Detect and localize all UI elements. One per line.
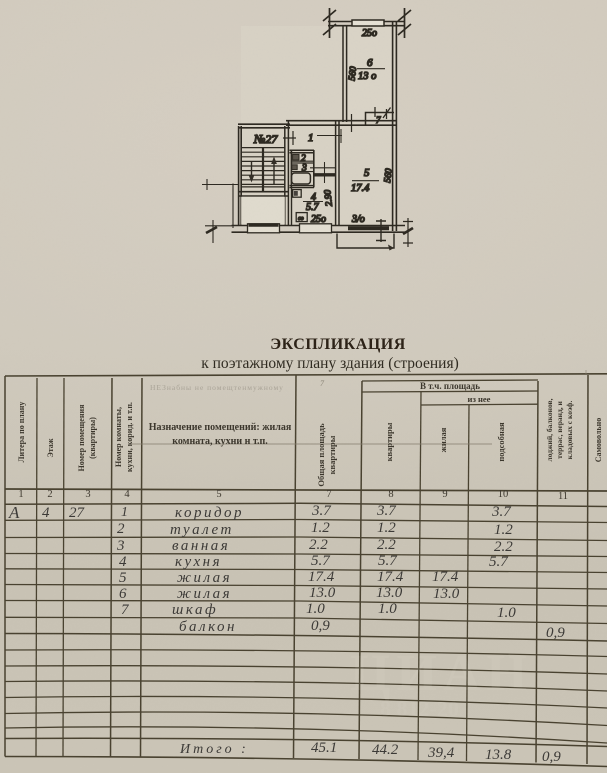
svg-text:1.0: 1.0 [378,601,397,617]
svg-text:Этаж: Этаж [46,438,55,457]
svg-text:шкаф: шкаф [172,602,218,618]
svg-text:1: 1 [18,489,23,500]
svg-text:7: 7 [121,602,130,618]
svg-text:балкон: балкон [179,619,237,635]
svg-text:7: 7 [376,115,381,125]
svg-text:квартиры: квартиры [327,435,337,474]
svg-text:5: 5 [216,489,221,500]
svg-text:560: 560 [348,66,360,82]
svg-text:3.7: 3.7 [376,503,397,519]
svg-text:№27: №27 [253,132,278,146]
svg-text:25o: 25o [311,214,326,225]
svg-text:В т.ч. площадь: В т.ч. площадь [420,381,480,391]
svg-text:(квартиры): (квартиры) [88,417,97,459]
svg-text:1: 1 [308,132,314,144]
svg-text:2.90: 2.90 [323,189,335,207]
svg-text:Назначение помещений: жилая: Назначение помещений: жилая [149,422,292,433]
svg-text:квартиры: квартиры [384,422,394,461]
svg-text:2.2: 2.2 [309,537,328,553]
svg-text:39,4: 39,4 [427,745,455,761]
svg-text:Номер комнаты,: Номер комнаты, [114,407,123,467]
svg-text:17.4: 17.4 [377,569,404,585]
svg-text:7: 7 [320,379,325,388]
svg-text:Итого :: Итого : [179,742,249,757]
svg-text:5: 5 [364,167,370,179]
svg-text:44.2: 44.2 [372,742,399,758]
svg-text:жилая: жилая [177,570,232,586]
svg-text:лоджий, балконов,: лоджий, балконов, [545,398,554,461]
svg-text:туалет: туалет [170,522,234,538]
svg-text:коридор: коридор [175,505,244,521]
svg-text:5.7: 5.7 [306,202,320,213]
svg-text:ЦИАН: ЦИАН [350,645,533,702]
svg-text:3.7: 3.7 [311,503,332,519]
svg-text:из нее: из нее [468,394,491,404]
svg-text:2: 2 [47,489,52,500]
svg-text:13 o: 13 o [358,71,376,82]
svg-text:0,9: 0,9 [546,625,565,641]
svg-text:6: 6 [119,586,127,602]
svg-text:4: 4 [119,554,127,570]
svg-text:3: 3 [85,489,90,500]
svg-text:co: co [298,216,304,222]
svg-text:17.4: 17.4 [308,569,335,585]
svg-text:Общая площадь: Общая площадь [316,423,326,487]
svg-text:3.7: 3.7 [491,504,512,520]
svg-text:террас, веранд, и: террас, веранд, и [555,400,564,458]
svg-text:45.1: 45.1 [311,740,337,756]
svg-text:Литера по плану: Литера по плану [17,402,26,463]
svg-text:11: 11 [558,491,568,502]
svg-text:ванная: ванная [172,538,230,554]
svg-text:Номер помещения: Номер помещения [77,404,86,472]
svg-text:А: А [8,503,20,522]
svg-text:17.4: 17.4 [432,569,459,585]
svg-text:кухня: кухня [175,554,222,570]
svg-text:2.2: 2.2 [377,537,396,553]
svg-text:0,9: 0,9 [542,749,561,765]
svg-text:НЕЗнабны не помещтенмужному: НЕЗнабны не помещтенмужному [150,383,284,392]
svg-text:8: 8 [388,489,393,500]
svg-text:1.0: 1.0 [306,601,325,617]
svg-text:13.0: 13.0 [433,586,460,602]
svg-text:1.2: 1.2 [377,520,396,536]
svg-text:кладовых с коэф.: кладовых с коэф. [565,401,574,460]
svg-text:13.0: 13.0 [376,585,403,601]
svg-text:2: 2 [301,154,306,164]
svg-text:комната, кухни н т.п.: комната, кухни н т.п. [172,436,268,447]
svg-text:8 812-20: 8 812-20 [380,696,459,721]
svg-text:6: 6 [367,57,373,69]
svg-text:жилая: жилая [438,427,448,452]
svg-text:3/o: 3/o [351,214,365,225]
svg-text:10: 10 [498,489,509,500]
svg-text:5.7: 5.7 [489,554,509,570]
svg-text:5: 5 [119,570,127,586]
svg-text:2: 2 [117,521,125,537]
svg-text:13.8: 13.8 [485,747,512,763]
svg-text:5.7: 5.7 [311,553,331,569]
svg-text:0,9: 0,9 [311,618,330,634]
svg-text:4: 4 [124,489,130,500]
svg-text:1.2: 1.2 [311,520,330,536]
svg-text:7: 7 [326,489,331,500]
svg-text:13.0: 13.0 [309,585,336,601]
svg-text:2.2: 2.2 [494,539,513,555]
svg-text:5.7: 5.7 [378,553,398,569]
svg-text:1: 1 [121,505,128,520]
svg-text:560: 560 [383,168,395,184]
svg-text:1.0: 1.0 [497,605,516,621]
svg-text:3: 3 [116,538,125,554]
svg-text:25o: 25o [362,28,377,39]
svg-text:1.2: 1.2 [494,522,513,538]
svg-text:17.4: 17.4 [351,183,370,194]
svg-text:жилая: жилая [177,586,232,602]
svg-text:кухни, корид. и т.п.: кухни, корид. и т.п. [125,402,134,472]
svg-text:9: 9 [442,489,447,500]
svg-text:Самовольно: Самовольно [594,418,603,462]
svg-text:27: 27 [69,505,86,521]
svg-text:подсобная: подсобная [496,422,506,462]
svg-text:4: 4 [42,505,50,521]
